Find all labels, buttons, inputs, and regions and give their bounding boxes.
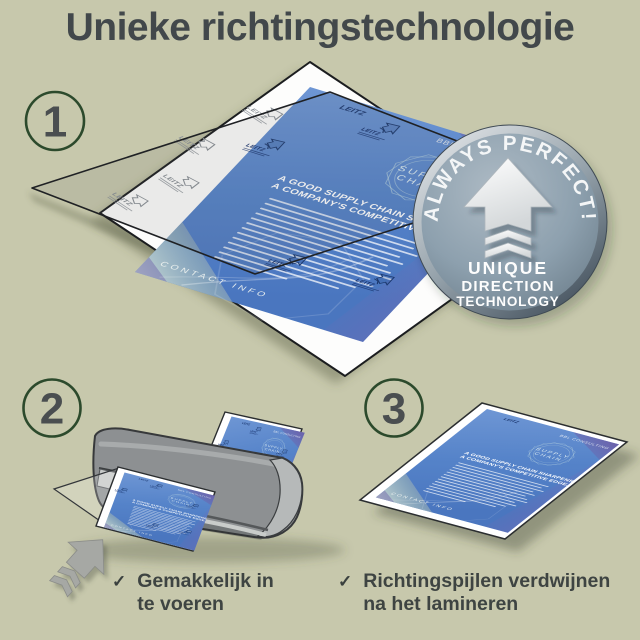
badge-line-3: TECHNOLOGY xyxy=(456,294,559,309)
illustration-scene: LEITZ LEITZ BBL CONSULTING LEITZ xyxy=(0,0,640,640)
laminator-shadow xyxy=(75,537,345,563)
checkmark-icon: ✓ xyxy=(112,570,126,593)
caption-easy-feed: ✓ Gemakkelijk in te voeren xyxy=(112,570,274,616)
caption-easy-feed-line-1: Gemakkelijk in xyxy=(137,570,274,593)
step-3-number: 3 xyxy=(382,385,406,434)
infographic-page: { "title": "Unieke richtingstechnologie"… xyxy=(0,0,640,640)
caption-easy-feed-line-2: te voeren xyxy=(137,593,274,616)
step-1-number: 1 xyxy=(43,98,67,147)
badge-line-1: UNIQUE xyxy=(468,258,548,278)
caption-arrows-disappear-line-1: Richtingspijlen verdwijnen xyxy=(363,570,610,593)
caption-arrows-disappear-line-2: na het lamineren xyxy=(363,593,610,616)
badge-line-2: DIRECTION xyxy=(461,278,554,295)
caption-arrows-disappear: ✓ Richtingspijlen verdwijnen na het lami… xyxy=(338,570,610,616)
step-3-group: 3 xyxy=(360,380,640,553)
checkmark-icon: ✓ xyxy=(338,570,352,593)
step-2-number: 2 xyxy=(40,385,64,434)
